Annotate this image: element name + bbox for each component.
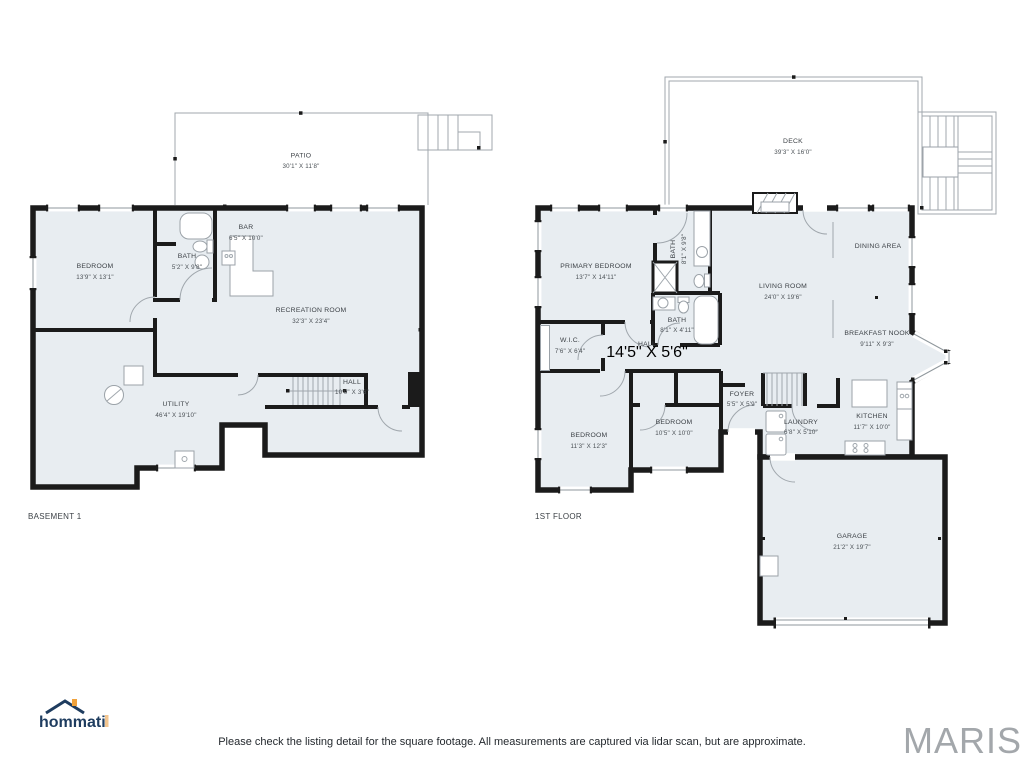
deck-stairs	[918, 112, 996, 214]
svg-text:39'3" X 16'0": 39'3" X 16'0"	[774, 149, 812, 156]
svg-text:9'11" X 9'3": 9'11" X 9'3"	[860, 341, 893, 348]
svg-text:10'0" X 3'6": 10'0" X 3'6"	[335, 389, 369, 396]
svg-text:5'2" X 9'8": 5'2" X 9'8"	[172, 264, 202, 271]
svg-text:DECK: DECK	[783, 138, 803, 145]
garage-footprint	[760, 457, 945, 623]
svg-text:5'5" X 5'9": 5'5" X 5'9"	[727, 401, 757, 408]
hommati-logo: hommati	[36, 694, 122, 734]
bar-appliance	[222, 251, 235, 265]
svg-text:7'6" X 6'4": 7'6" X 6'4"	[555, 348, 585, 355]
stove	[845, 441, 885, 455]
svg-text:FOYER: FOYER	[730, 391, 755, 398]
svg-text:46'4" X 19'10": 46'4" X 19'10"	[155, 412, 196, 419]
svg-text:BEDROOM: BEDROOM	[656, 419, 693, 426]
toilet-tank	[207, 240, 213, 253]
basement-plan: PATIO 30'1" X 11'8" BEDROOM 13'9" X 13'1…	[28, 111, 492, 521]
svg-text:30'1" X 11'8": 30'1" X 11'8"	[282, 163, 319, 170]
roof-icon	[46, 701, 84, 713]
svg-text:BATH: BATH	[178, 253, 197, 260]
basement-patio-outline	[173, 111, 492, 205]
svg-text:32'3" X 23'4": 32'3" X 23'4"	[292, 318, 330, 325]
first-floor-label: 1ST FLOOR	[535, 512, 582, 521]
floorplan-canvas: PATIO 30'1" X 11'8" BEDROOM 13'9" X 13'1…	[0, 0, 1024, 768]
svg-text:RECREATION ROOM: RECREATION ROOM	[276, 307, 347, 314]
svg-text:KITCHEN: KITCHEN	[856, 413, 888, 420]
svg-text:PATIO: PATIO	[291, 153, 312, 160]
bathtub	[694, 296, 718, 344]
svg-text:BEDROOM: BEDROOM	[77, 263, 114, 270]
svg-text:HALL: HALL	[343, 379, 361, 386]
svg-text:8'1" X 4'11": 8'1" X 4'11"	[660, 327, 693, 334]
svg-text:BATH: BATH	[670, 240, 677, 259]
garage-step	[760, 556, 778, 576]
svg-text:11'7" X 10'0": 11'7" X 10'0"	[853, 424, 890, 431]
floorplan-page: PATIO 30'1" X 11'8" BEDROOM 13'9" X 13'1…	[0, 0, 1024, 768]
svg-text:BREAKFAST NOOK: BREAKFAST NOOK	[844, 330, 910, 337]
first-floor-plan: DECK 39'3" X 16'0" PRIMARY BEDROOM 13'7"…	[535, 75, 996, 628]
svg-text:14'5" X 5'6": 14'5" X 5'6"	[606, 344, 688, 361]
svg-text:11'3" X 12'3": 11'3" X 12'3"	[570, 443, 607, 450]
room-label-hall-first: HALL 14'5" X 5'6"	[606, 341, 688, 361]
svg-text:13'7" X 14'11": 13'7" X 14'11"	[576, 274, 617, 281]
toilet-bowl	[193, 241, 207, 252]
svg-text:BEDROOM: BEDROOM	[571, 432, 608, 439]
toilet-tank	[705, 274, 711, 287]
svg-text:GARAGE: GARAGE	[837, 533, 868, 540]
hommati-wordmark: hommati	[39, 714, 106, 731]
kitchen-appliance	[897, 389, 912, 409]
svg-text:6'5" X 10'0": 6'5" X 10'0"	[229, 235, 263, 242]
deck-outline	[663, 75, 996, 214]
room-label-deck: DECK 39'3" X 16'0"	[774, 138, 812, 156]
svg-text:BAR: BAR	[239, 224, 254, 231]
toilet-bowl	[679, 301, 689, 313]
room-label-patio: PATIO 30'1" X 11'8"	[282, 153, 319, 171]
electrical-panel	[124, 366, 143, 385]
logo-accent-bar	[105, 715, 109, 727]
basement-footprint	[33, 208, 422, 487]
svg-text:13'9" X 13'1": 13'9" X 13'1"	[76, 274, 114, 281]
svg-text:W.I.C.: W.I.C.	[560, 337, 580, 344]
svg-text:6'8" X 5'10": 6'8" X 5'10"	[784, 429, 818, 436]
chimney-icon	[72, 699, 77, 706]
kitchen-island	[852, 380, 887, 407]
svg-text:24'0" X 19'6": 24'0" X 19'6"	[764, 294, 802, 301]
sink	[658, 298, 668, 308]
dryer	[766, 434, 786, 455]
basement-floor-label: BASEMENT 1	[28, 512, 82, 521]
svg-text:21'2" X 19'7": 21'2" X 19'7"	[833, 544, 871, 551]
svg-text:LAUNDRY: LAUNDRY	[784, 419, 818, 426]
closet-shelf	[541, 326, 550, 371]
svg-text:LIVING ROOM: LIVING ROOM	[759, 283, 807, 290]
toilet-bowl	[694, 275, 704, 288]
svg-text:DINING AREA: DINING AREA	[855, 243, 902, 250]
fireplace	[753, 193, 797, 213]
svg-text:UTILITY: UTILITY	[162, 401, 189, 408]
svg-text:10'5" X 10'0": 10'5" X 10'0"	[655, 430, 693, 437]
svg-text:BATH: BATH	[668, 317, 687, 324]
maris-watermark: MARIS	[903, 720, 1022, 762]
sink	[697, 247, 708, 258]
patio-stairs	[418, 115, 492, 150]
bathtub	[180, 213, 212, 239]
room-label-dining-area: DINING AREA	[855, 243, 902, 250]
svg-text:8'1" X 9'8": 8'1" X 9'8"	[681, 234, 688, 264]
water-heater	[175, 451, 194, 468]
svg-text:PRIMARY BEDROOM: PRIMARY BEDROOM	[560, 263, 632, 270]
disclaimer-text: Please check the listing detail for the …	[0, 736, 1024, 748]
